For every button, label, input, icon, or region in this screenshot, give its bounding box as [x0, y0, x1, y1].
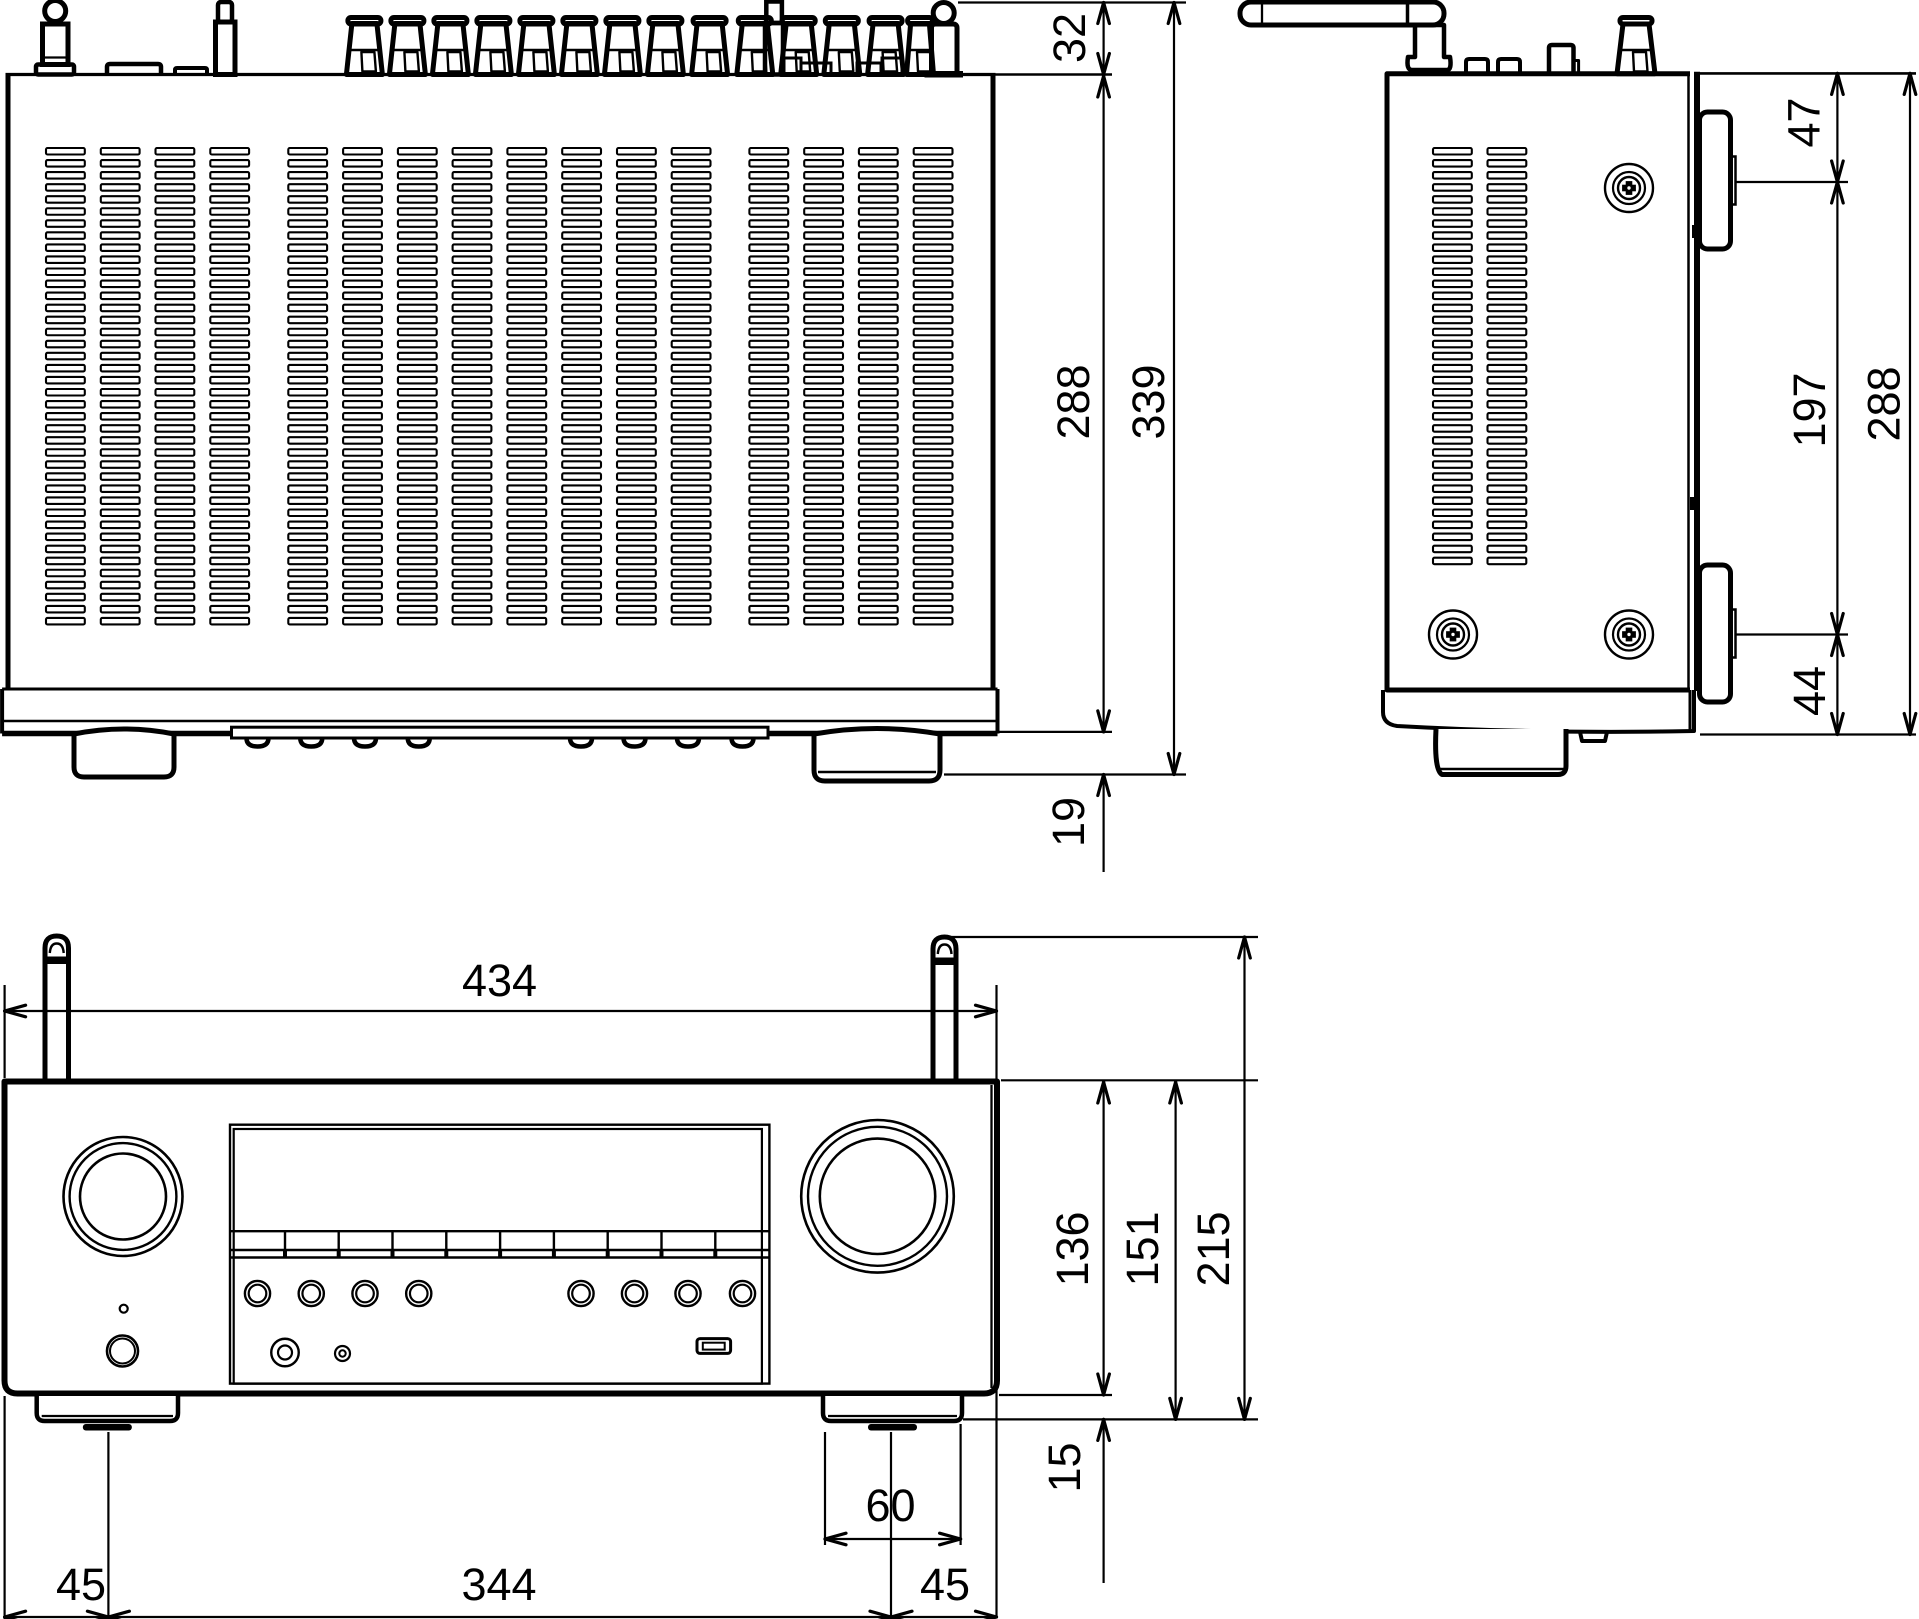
- svg-text:288: 288: [1859, 366, 1910, 441]
- svg-text:44: 44: [1784, 666, 1835, 716]
- svg-text:344: 344: [461, 1559, 536, 1610]
- svg-text:151: 151: [1117, 1211, 1168, 1286]
- svg-text:197: 197: [1784, 372, 1835, 447]
- svg-text:47: 47: [1779, 97, 1830, 147]
- svg-text:339: 339: [1123, 364, 1174, 439]
- svg-text:288: 288: [1048, 364, 1099, 439]
- svg-text:19: 19: [1043, 797, 1094, 847]
- svg-text:136: 136: [1047, 1211, 1098, 1286]
- svg-text:45: 45: [920, 1559, 970, 1610]
- svg-text:15: 15: [1039, 1442, 1090, 1492]
- svg-text:434: 434: [462, 955, 537, 1006]
- svg-text:45: 45: [56, 1559, 106, 1610]
- svg-text:32: 32: [1044, 13, 1095, 63]
- svg-text:215: 215: [1188, 1211, 1239, 1286]
